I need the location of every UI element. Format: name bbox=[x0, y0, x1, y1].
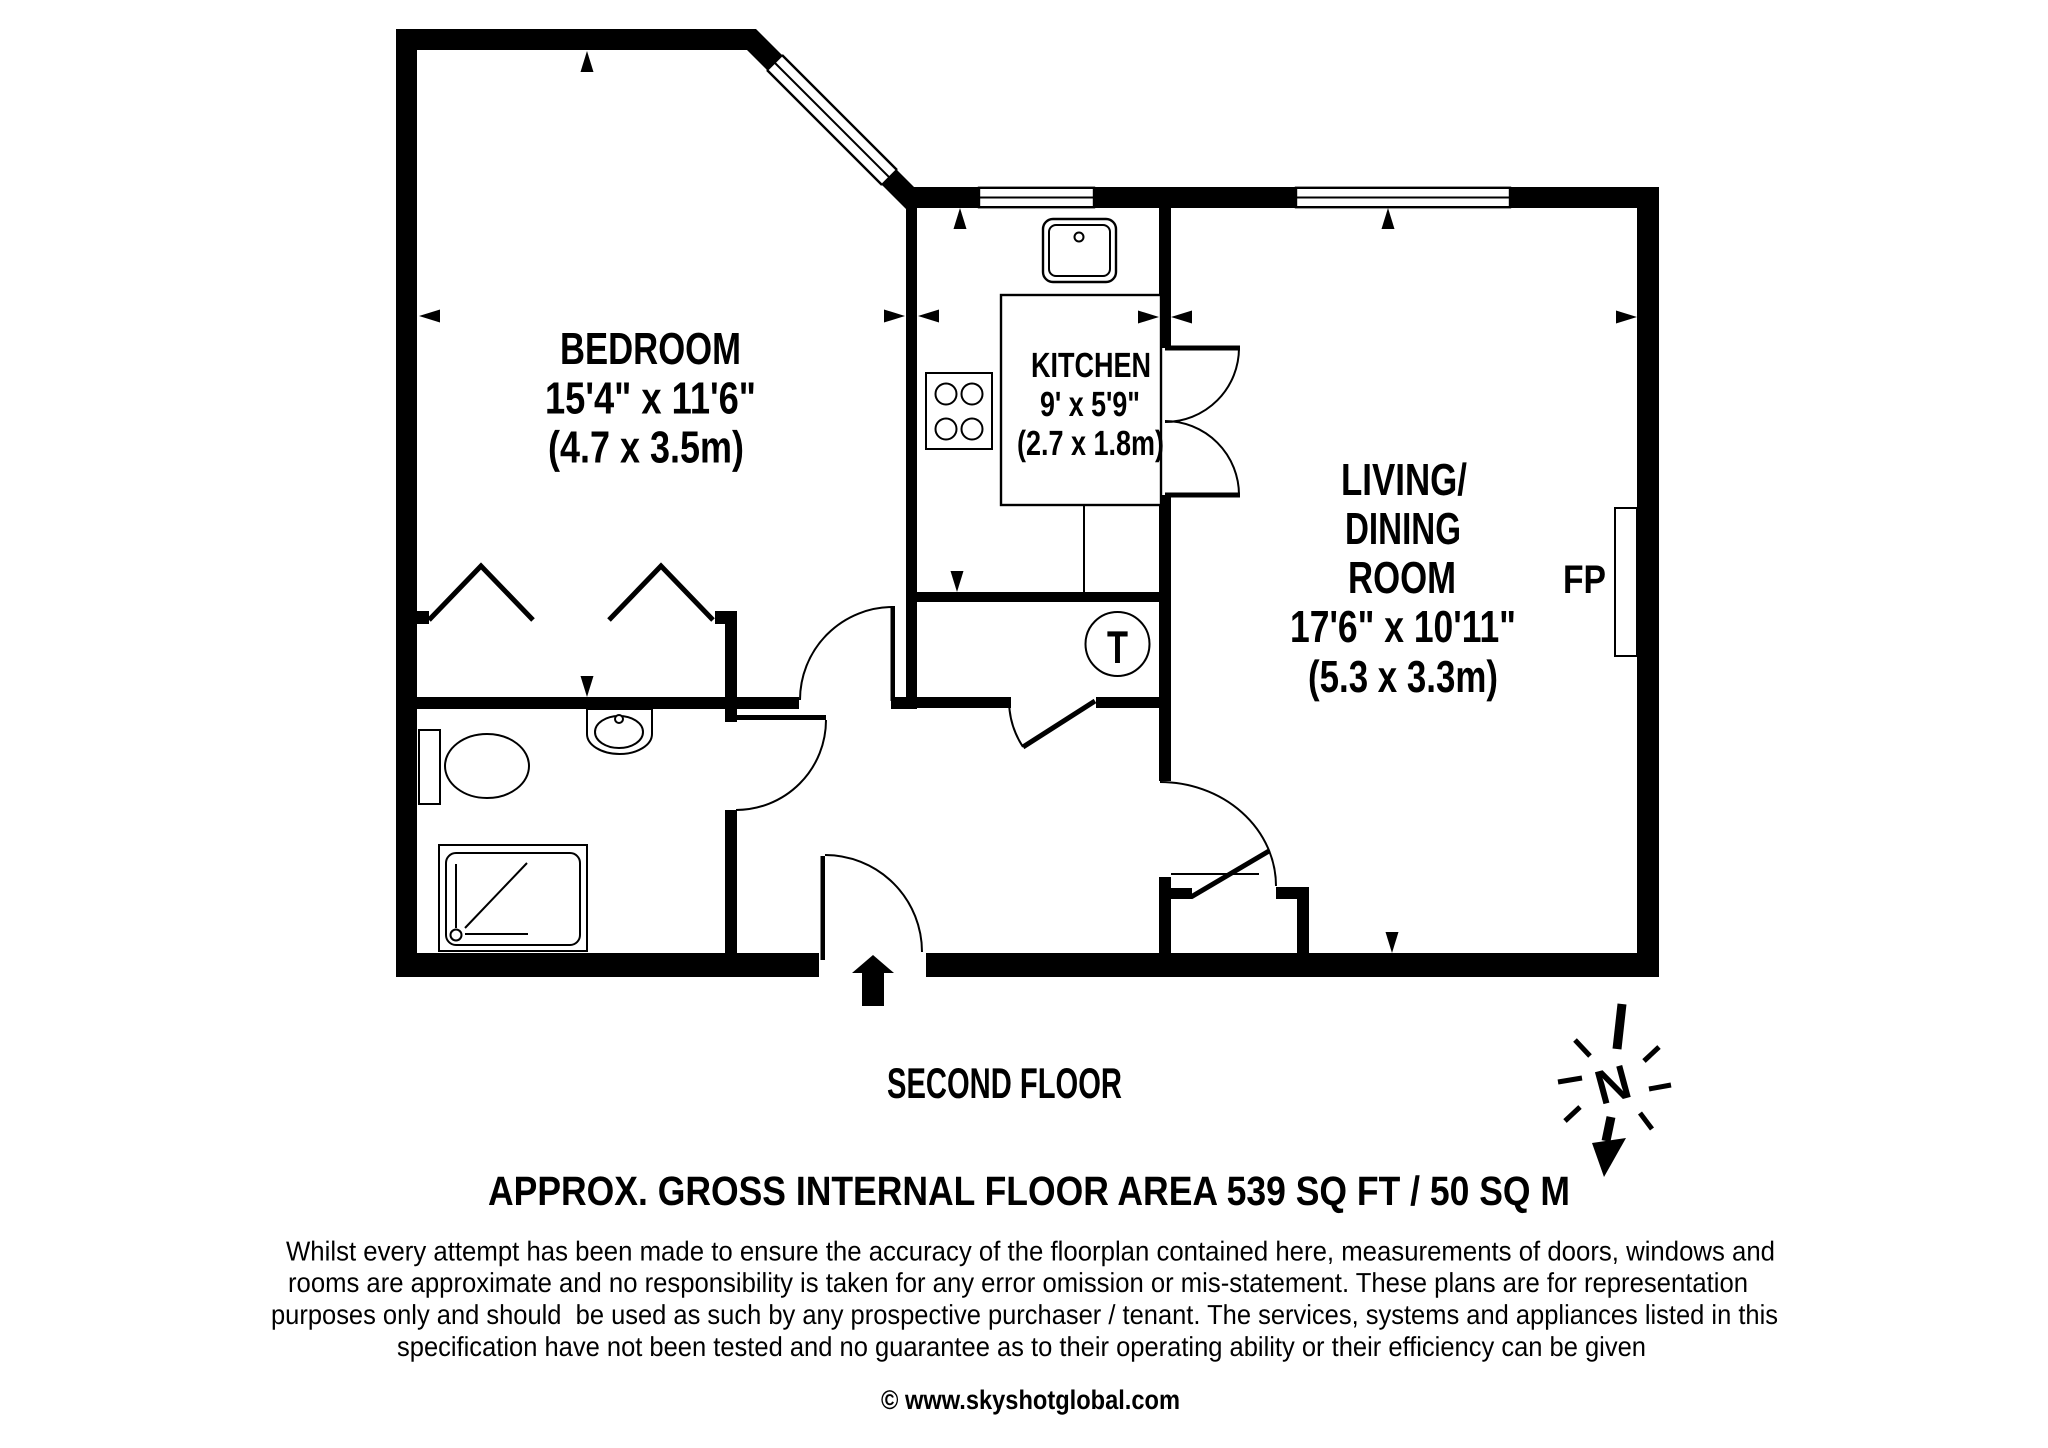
svg-text:(4.7 x 3.5m): (4.7 x 3.5m) bbox=[548, 422, 744, 473]
svg-text:FP: FP bbox=[1563, 558, 1606, 602]
svg-text:© www.skyshotglobal.com: © www.skyshotglobal.com bbox=[881, 1385, 1180, 1415]
svg-text:ROOM: ROOM bbox=[1348, 552, 1456, 603]
svg-text:SECOND FLOOR: SECOND FLOOR bbox=[887, 1060, 1122, 1108]
svg-text:9' x 5'9": 9' x 5'9" bbox=[1040, 385, 1140, 424]
svg-text:Whilst every attempt has been: Whilst every attempt has been made to en… bbox=[286, 1235, 1775, 1266]
svg-text:(5.3 x 3.3m): (5.3 x 3.3m) bbox=[1308, 651, 1498, 702]
svg-text:17'6" x 10'11": 17'6" x 10'11" bbox=[1290, 601, 1516, 652]
svg-text:specification have not been te: specification have not been tested and n… bbox=[397, 1331, 1646, 1362]
svg-text:purposes only and should be u: purposes only and should be used as such… bbox=[271, 1299, 1778, 1330]
svg-text:LIVING/: LIVING/ bbox=[1341, 454, 1467, 505]
svg-text:15'4" x 11'6": 15'4" x 11'6" bbox=[545, 373, 756, 424]
svg-text:T: T bbox=[1107, 621, 1128, 673]
svg-text:KITCHEN: KITCHEN bbox=[1031, 346, 1151, 385]
svg-text:(2.7 x 1.8m): (2.7 x 1.8m) bbox=[1017, 424, 1164, 463]
svg-text:rooms are approximate and no r: rooms are approximate and no responsibil… bbox=[288, 1267, 1748, 1298]
svg-text:APPROX. GROSS INTERNAL FLOOR A: APPROX. GROSS INTERNAL FLOOR AREA 539 SQ… bbox=[488, 1168, 1570, 1214]
svg-text:BEDROOM: BEDROOM bbox=[560, 323, 741, 374]
svg-text:DINING: DINING bbox=[1345, 503, 1461, 554]
